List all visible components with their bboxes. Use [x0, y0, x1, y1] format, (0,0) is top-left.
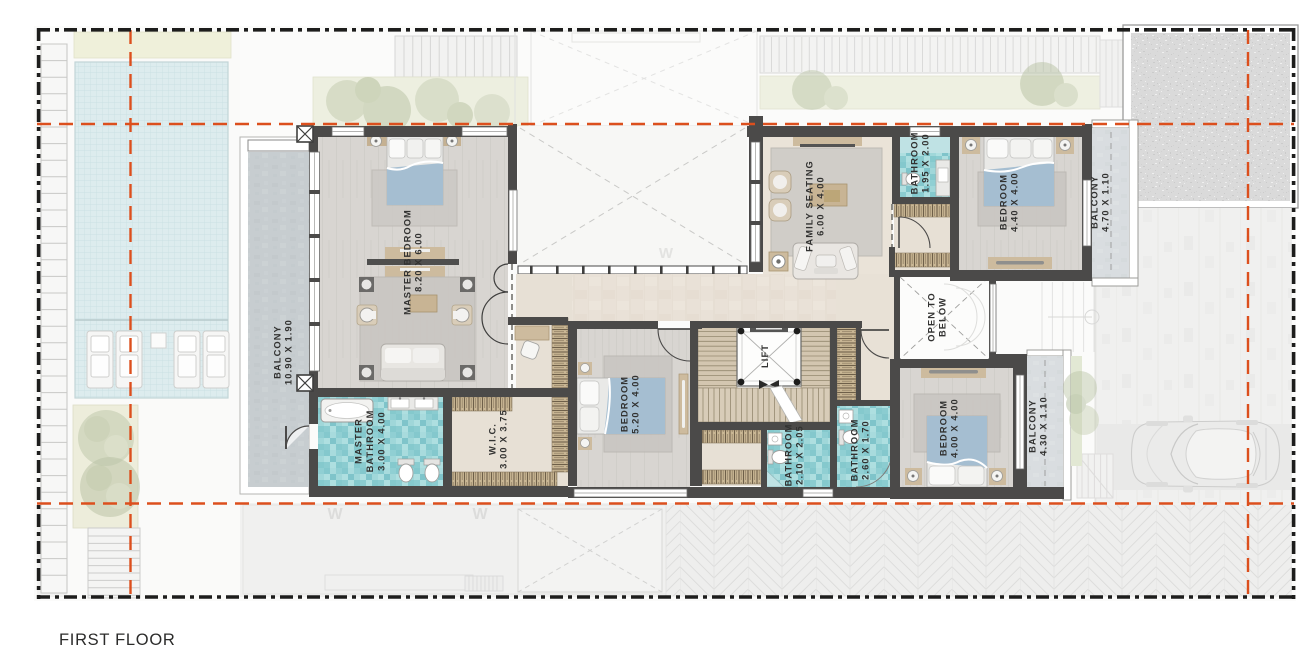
svg-text:BEDROOM4.00 X 4.00: BEDROOM4.00 X 4.00: [938, 398, 959, 458]
svg-text:BEDROOM4.40 X 4.00: BEDROOM4.40 X 4.00: [998, 172, 1019, 232]
svg-text:BATHROOM2.60 X 1.70: BATHROOM2.60 X 1.70: [849, 419, 870, 482]
svg-text:BALCONY4.30 X 1.10: BALCONY4.30 X 1.10: [1027, 396, 1048, 456]
svg-text:BALCONY4.70 X 1.10: BALCONY4.70 X 1.10: [1089, 172, 1110, 232]
svg-text:OPEN TOBELOW: OPEN TOBELOW: [926, 292, 947, 341]
svg-text:MASTERBATHROOM3.00 X 4.00: MASTERBATHROOM3.00 X 4.00: [354, 410, 387, 473]
svg-text:LIFT: LIFT: [760, 344, 770, 368]
svg-text:W: W: [327, 506, 343, 523]
svg-text:BATHROOM1.95 X 2.00: BATHROOM1.95 X 2.00: [909, 132, 930, 195]
svg-text:W: W: [659, 245, 674, 262]
svg-text:W: W: [472, 506, 488, 523]
svg-text:BATHROOM2.10 X 2.05: BATHROOM2.10 X 2.05: [783, 424, 804, 487]
svg-text:FIRST FLOOR: FIRST FLOOR: [59, 631, 176, 649]
svg-text:BEDROOM5.20 X 4.00: BEDROOM5.20 X 4.00: [619, 374, 640, 434]
svg-text:BALCONY10.90 X 1.90: BALCONY10.90 X 1.90: [272, 319, 293, 385]
